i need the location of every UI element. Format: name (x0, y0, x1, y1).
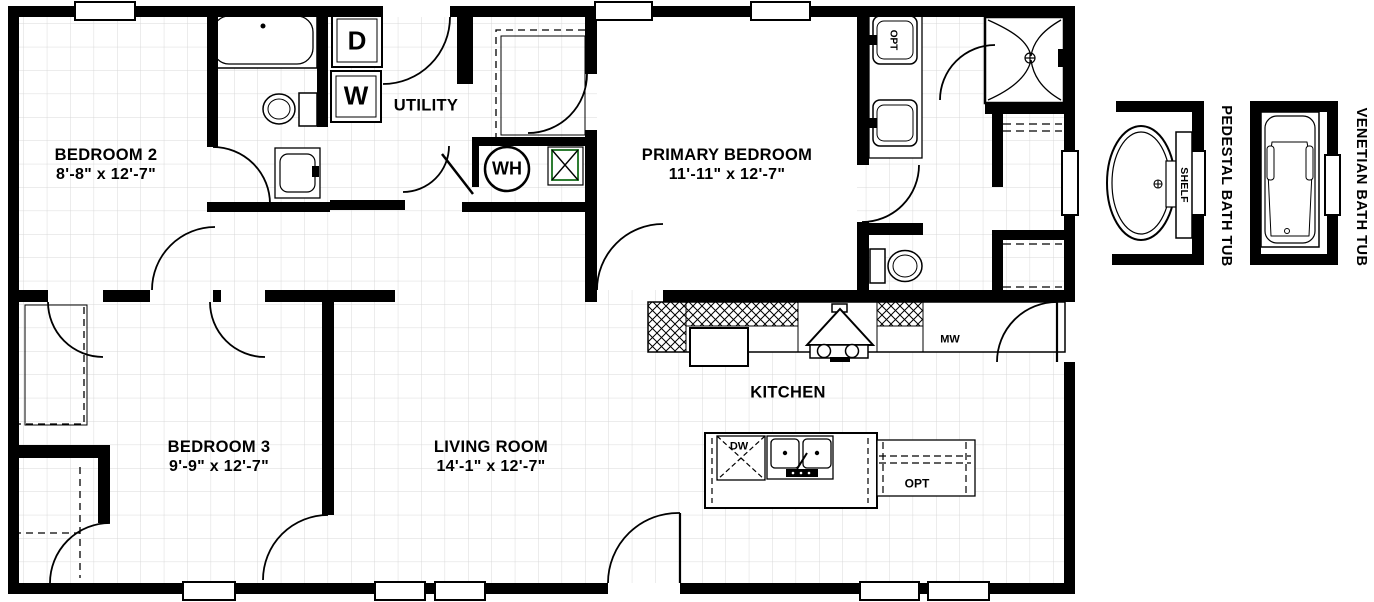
island-sink (767, 436, 833, 479)
room-label-living-room: LIVING ROOM 14'-1" x 12'-7" (434, 438, 548, 476)
room-label-primary-bedroom: PRIMARY BEDROOM 11'-11" x 12'-7" (642, 146, 812, 184)
room-label-utility: UTILITY (394, 97, 458, 116)
room-dims: 8'-8" x 12'-7" (55, 165, 158, 184)
shower-primary-bath (985, 17, 1064, 103)
island-option-label: OPT (905, 475, 930, 494)
room-name: LIVING ROOM (434, 438, 548, 457)
toilet-primary-bath (870, 249, 922, 283)
room-label-kitchen: KITCHEN (750, 384, 825, 403)
sink-hall-bath (275, 148, 320, 198)
bathtub-hall-bath (209, 12, 317, 68)
refrigerator (690, 328, 748, 366)
room-label-bedroom2: BEDROOM 2 8'-8" x 12'-7" (55, 146, 158, 184)
floor-plan-drawing (0, 0, 1374, 602)
dryer-label: D (348, 32, 367, 51)
room-dims: 14'-1" x 12'-7" (434, 457, 548, 476)
room-name: PRIMARY BEDROOM (642, 146, 812, 165)
washer-label: W (344, 87, 369, 106)
option-label-pedestal-bath-tub: PEDESTAL BATH TUB (1218, 105, 1234, 267)
room-name: BEDROOM 2 (55, 146, 158, 165)
optional-sink-label: OPT (888, 30, 899, 51)
furnace-box (548, 147, 583, 185)
floor-plan: BEDROOM 2 8'-8" x 12'-7" PRIMARY BEDROOM… (0, 0, 1374, 602)
room-label-bedroom3: BEDROOM 3 9'-9" x 12'-7" (168, 438, 271, 476)
room-name: BEDROOM 3 (168, 438, 271, 457)
room-dims: 9'-9" x 12'-7" (168, 457, 271, 476)
dishwasher-label: DW (730, 438, 748, 457)
water-heater-label: WH (492, 160, 522, 179)
option-label-venetian-bath-tub: VENETIAN BATH TUB (1353, 108, 1369, 267)
venetian-bath-tub (1261, 112, 1319, 247)
room-dims: 11'-11" x 12'-7" (642, 165, 812, 184)
microwave-label: MW (940, 331, 960, 350)
shelf-label: SHELF (1178, 167, 1190, 202)
